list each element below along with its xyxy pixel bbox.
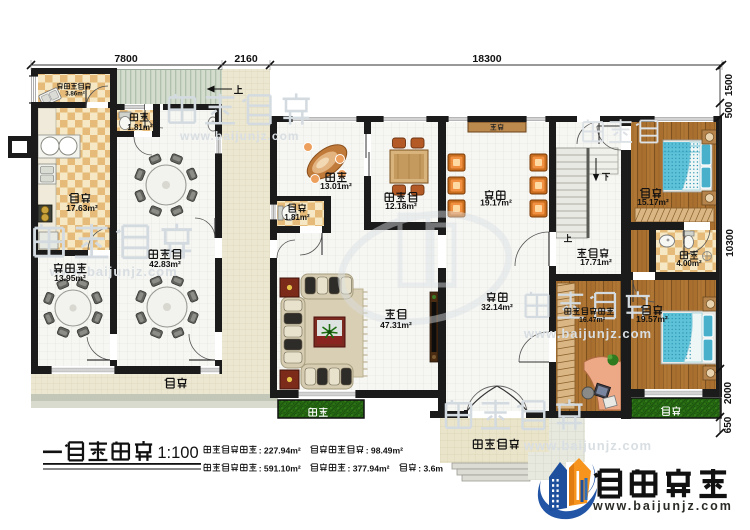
svg-text:42.83m²: 42.83m² [149,259,181,269]
svg-text:19.57m²: 19.57m² [636,314,668,324]
svg-text:www.baijunjz.com: www.baijunjz.com [592,499,733,513]
svg-text:: 3.6m: : 3.6m [418,464,443,474]
svg-text:32.14m²: 32.14m² [481,302,513,312]
svg-text:18300: 18300 [472,53,501,65]
svg-text:13.95m²: 13.95m² [54,273,86,283]
svg-text:1.81m²: 1.81m² [127,123,153,132]
svg-text:1500: 1500 [724,73,735,96]
svg-text:: 98.49m²: : 98.49m² [366,446,403,456]
svg-text:: 377.94m²: : 377.94m² [347,464,389,474]
svg-text:www.baijunjz.com: www.baijunjz.com [523,438,652,453]
svg-text:47.31m²: 47.31m² [380,320,412,330]
svg-text:12.18m²: 12.18m² [385,201,417,211]
svg-text:650: 650 [723,416,734,433]
svg-text:3.86m²: 3.86m² [65,91,85,98]
svg-text:2160: 2160 [234,53,258,65]
svg-text:2000: 2000 [723,381,734,404]
svg-text:7800: 7800 [114,53,138,65]
svg-text:4.00m²: 4.00m² [676,259,702,268]
svg-text:10300: 10300 [725,229,736,257]
svg-text:: 591.10m²: : 591.10m² [259,464,301,474]
svg-text:17.63m²: 17.63m² [66,203,98,213]
svg-text:www.baijunjz.com: www.baijunjz.com [523,326,652,341]
svg-text:15.17m²: 15.17m² [637,197,669,207]
svg-text:1:100: 1:100 [157,444,198,462]
svg-text:17.71m²: 17.71m² [580,257,612,267]
svg-text:16.47m²: 16.47m² [579,317,606,324]
svg-text:13.01m²: 13.01m² [320,181,352,191]
svg-text:: 227.94m²: : 227.94m² [259,446,301,456]
svg-text:1.81m²: 1.81m² [284,213,310,222]
svg-text:19.17m²: 19.17m² [480,198,512,208]
svg-text:www.baijunjz.com: www.baijunjz.com [179,129,300,143]
svg-text:500: 500 [724,101,735,118]
